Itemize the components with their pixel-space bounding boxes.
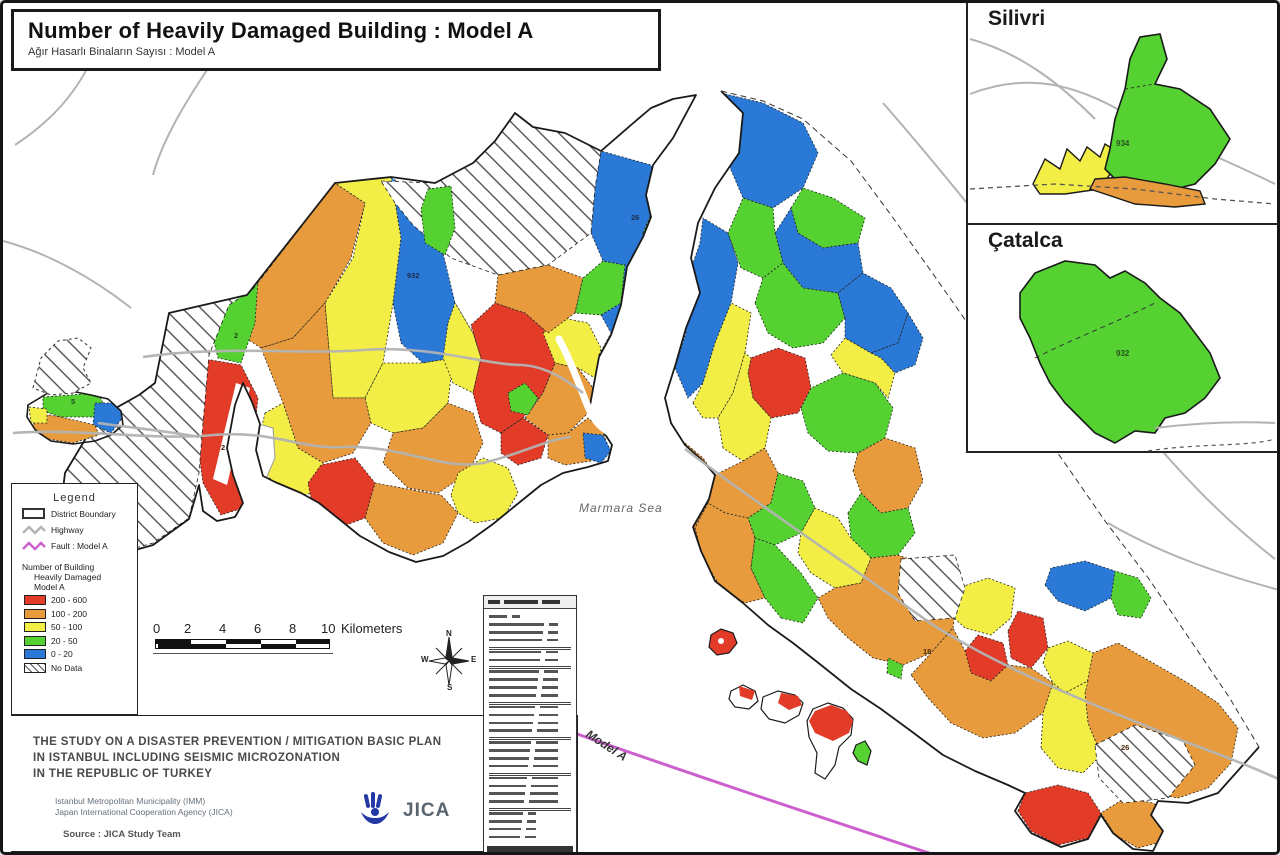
legend-class-header-line: Number of Building bbox=[22, 562, 137, 572]
compass-w: W bbox=[421, 655, 429, 664]
study-title-line: IN ISTANBUL INCLUDING SEISMIC MICROZONAT… bbox=[33, 752, 340, 764]
table-row bbox=[489, 773, 571, 780]
district-value-label: 932 bbox=[407, 271, 420, 280]
silivri-map bbox=[968, 3, 1280, 221]
table-row bbox=[489, 702, 571, 709]
district-value-label: 2 bbox=[221, 443, 225, 452]
scale-bar-graphic bbox=[155, 639, 330, 649]
table-row bbox=[489, 639, 571, 642]
class-swatch bbox=[24, 636, 46, 646]
legend-class-header-line: Heavily Damaged bbox=[34, 572, 137, 582]
silivri-district-value: 934 bbox=[1116, 139, 1129, 148]
inset-catalca: Çatalca 932 bbox=[966, 225, 1280, 453]
district-data-table bbox=[483, 595, 577, 855]
table-row bbox=[489, 792, 571, 795]
table-header bbox=[484, 596, 576, 609]
table-rows bbox=[484, 609, 576, 845]
class-label: No Data bbox=[51, 663, 82, 673]
compass-s: S bbox=[447, 683, 452, 692]
legend-item-label: District Boundary bbox=[51, 509, 116, 519]
class-label: 200 - 600 bbox=[51, 595, 87, 605]
table-row bbox=[489, 828, 571, 831]
table-row bbox=[489, 765, 571, 768]
compass-n: N bbox=[446, 629, 452, 638]
scale-tick: 4 bbox=[219, 621, 226, 636]
highway-icon bbox=[22, 524, 46, 535]
scale-tick: 10 bbox=[321, 621, 335, 636]
inset-catalca-title: Çatalca bbox=[988, 229, 1063, 253]
jica-logo-icon bbox=[356, 790, 394, 830]
legend-class-row: No Data bbox=[24, 662, 137, 674]
map-sheet: Marmara Sea Model A 932 2 2 5 26 18 26 N… bbox=[0, 0, 1280, 855]
district-value-label: 5 bbox=[71, 397, 75, 406]
district-value-label: 26 bbox=[631, 213, 639, 222]
catalca-map bbox=[968, 225, 1280, 453]
legend-item-highway: Highway bbox=[22, 523, 137, 536]
table-row bbox=[489, 647, 571, 654]
title-box: Number of Heavily Damaged Building : Mod… bbox=[11, 9, 661, 71]
table-row bbox=[489, 686, 571, 689]
district-value-label: 18 bbox=[923, 647, 931, 656]
scale-tick: 6 bbox=[254, 621, 261, 636]
princes-islands bbox=[709, 629, 871, 779]
table-row bbox=[489, 737, 571, 744]
source-line: Source : JICA Study Team bbox=[63, 829, 181, 840]
scale-tick: 2 bbox=[184, 621, 191, 636]
table-row bbox=[489, 836, 571, 839]
legend-class-row: 50 - 100 bbox=[24, 621, 137, 633]
class-label: 20 - 50 bbox=[51, 636, 77, 646]
table-footer-bar bbox=[487, 846, 573, 852]
compass-e: E bbox=[471, 655, 476, 664]
table-row bbox=[489, 820, 571, 823]
inset-silivri: Silivri 934 bbox=[966, 3, 1280, 225]
table-row bbox=[489, 694, 571, 697]
map-subtitle: Ağır Hasarlı Binaların Sayısı : Model A bbox=[28, 46, 646, 58]
hatched-blob-northwest bbox=[33, 338, 91, 395]
district-value-label: 2 bbox=[234, 331, 238, 340]
legend-item-label: Highway bbox=[51, 525, 84, 535]
compass-rose: N E S W bbox=[421, 629, 477, 693]
legend-item-fault: Fault : Model A bbox=[22, 539, 137, 552]
table-row bbox=[489, 722, 571, 725]
legend-class-header: Number of Building Heavily Damaged Model… bbox=[22, 562, 137, 592]
table-row bbox=[489, 615, 571, 618]
class-swatch bbox=[24, 649, 46, 659]
legend-class-header-line: Model A bbox=[34, 582, 137, 592]
fault-icon bbox=[22, 540, 46, 551]
legend-class-row: 200 - 600 bbox=[24, 594, 137, 606]
table-row bbox=[489, 785, 571, 788]
marmara-sea-label: Marmara Sea bbox=[579, 501, 663, 515]
no-data-swatch bbox=[24, 663, 46, 673]
study-title-line: IN THE REPUBLIC OF TURKEY bbox=[33, 768, 212, 780]
district-boundary-icon bbox=[22, 508, 46, 519]
inset-silivri-title: Silivri bbox=[988, 7, 1045, 31]
table-row bbox=[489, 631, 571, 634]
class-swatch bbox=[24, 622, 46, 632]
jica-logo-text: JICA bbox=[403, 800, 450, 822]
table-row bbox=[489, 729, 571, 732]
class-label: 50 - 100 bbox=[51, 622, 82, 632]
district-value-label: 26 bbox=[1121, 743, 1129, 752]
table-row bbox=[489, 714, 571, 717]
scale-tick: 8 bbox=[289, 621, 296, 636]
legend: Legend District Boundary Highway Fault :… bbox=[11, 483, 138, 715]
legend-item-district-boundary: District Boundary bbox=[22, 507, 137, 520]
scale-tick: 0 bbox=[153, 621, 160, 636]
legend-class-row: 20 - 50 bbox=[24, 635, 137, 647]
map-title: Number of Heavily Damaged Building : Mod… bbox=[28, 18, 646, 44]
table-row bbox=[489, 800, 571, 803]
class-swatch bbox=[24, 595, 46, 605]
table-row bbox=[489, 757, 571, 760]
organization-line: Istanbul Metropolitan Municipality (IMM) bbox=[55, 796, 205, 806]
table-row bbox=[489, 808, 571, 815]
scale-bar: 0 2 4 6 8 10 Kilometers bbox=[153, 621, 463, 667]
legend-title: Legend bbox=[12, 492, 137, 504]
class-swatch bbox=[24, 609, 46, 619]
legend-class-row: 100 - 200 bbox=[24, 608, 137, 620]
legend-item-label: Fault : Model A bbox=[51, 541, 108, 551]
legend-class-row: 0 - 20 bbox=[24, 648, 137, 660]
scale-unit: Kilometers bbox=[341, 621, 402, 636]
organization-line: Japan International Cooperation Agency (… bbox=[55, 807, 233, 817]
table-row bbox=[489, 678, 571, 681]
class-label: 100 - 200 bbox=[51, 609, 87, 619]
class-label: 0 - 20 bbox=[51, 649, 73, 659]
table-row bbox=[489, 749, 571, 752]
table-row bbox=[489, 666, 571, 673]
study-title-line: THE STUDY ON A DISASTER PREVENTION / MIT… bbox=[33, 736, 441, 748]
table-row bbox=[489, 659, 571, 662]
catalca-district-value: 932 bbox=[1116, 349, 1129, 358]
table-row bbox=[489, 623, 571, 626]
